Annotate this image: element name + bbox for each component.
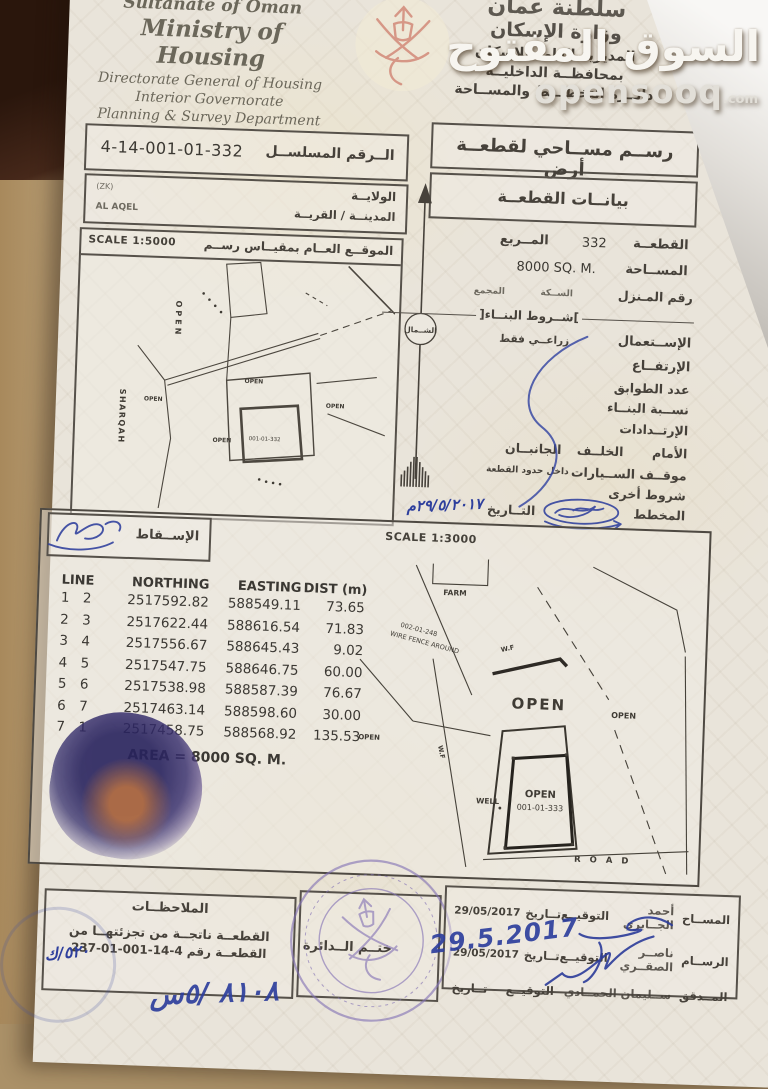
- plot-value: 332: [582, 236, 607, 252]
- footer-signatures-scribble: [501, 891, 694, 998]
- floors-label: عدد الطوابق: [614, 380, 690, 398]
- table-cell: 73.65: [300, 596, 365, 620]
- document: Sultanate of Oman Ministry of Housing Di…: [0, 0, 768, 1072]
- table-cell: 2: [83, 588, 114, 611]
- map-label-open3: OPEN: [326, 403, 345, 411]
- map-label-sharqah: SHARQAH: [116, 389, 127, 444]
- header-english: Sultanate of Oman Ministry of Housing Di…: [84, 0, 338, 130]
- doc-title-box: رســم مســاحي لقطعــة أرض: [430, 122, 699, 177]
- setbacks-label: الإرتــدادات: [619, 421, 688, 438]
- house-number-label: رقم المـنزل: [618, 288, 693, 306]
- location-map-title: الموقــع العــام بمقيــاس رســم: [204, 237, 394, 258]
- planner-label: المخطط: [633, 507, 685, 524]
- projection-label: الإســقاط: [135, 527, 199, 544]
- table-cell: 6: [57, 695, 80, 717]
- table-cell: 588568.92: [204, 722, 297, 747]
- map-label-open4: OPEN: [212, 437, 231, 445]
- serial-label: الــرقم المسلســل: [265, 144, 395, 164]
- map-label-open-vertical: OPEN: [173, 300, 183, 337]
- table-cell: 5: [58, 674, 81, 696]
- table-cell: 71.83: [300, 618, 365, 642]
- checker-date-label: تــاريخ: [451, 981, 487, 996]
- projection-box: الإســقاط: [46, 512, 211, 562]
- table-cell: 5: [80, 653, 111, 676]
- building-terms-title: ]شــروط البنــاء[: [476, 307, 582, 325]
- watermark-brand-name: opensooq: [534, 72, 723, 111]
- detail-map-open-left-label: OPEN: [358, 733, 380, 742]
- detail-map-wf1-label: W.F: [500, 643, 515, 654]
- block-label: المــربع: [500, 232, 549, 249]
- area-label: المســاحة: [625, 262, 688, 279]
- plot-details-panel: القطعــة 332 المــربع المســاحة 8000 SQ.…: [435, 230, 697, 534]
- detail-map-open-right-label: OPEN: [611, 711, 636, 721]
- planner-date-handwritten: ٢٩/٥/٢٠١٧م: [406, 495, 483, 516]
- table-cell: 2: [60, 609, 83, 631]
- signatures-box: المســاح أحمد الجــابري التوقيــع تــاري…: [442, 885, 741, 999]
- photo-of-survey-document: { "watermark": { "line1": "السوق المفتوح…: [0, 0, 768, 1024]
- lane-label: الســكة: [540, 288, 573, 299]
- table-cell: 60.00: [298, 660, 363, 684]
- projection-signature: [42, 508, 134, 559]
- map-plot-number: 001-01-332: [249, 436, 281, 443]
- location-map-drawing: OPEN SHARQAH OPEN OPEN OPEN OPEN 001-01-…: [72, 255, 397, 520]
- detail-map-open-plot-label: OPEN: [525, 789, 556, 801]
- wilaya-value: (ZK): [96, 182, 113, 192]
- area-value: 8000 SQ. M.: [516, 259, 596, 277]
- header-en-line2: Ministry of Housing: [86, 12, 338, 75]
- table-cell: 9.02: [299, 639, 364, 663]
- bottom-handwriting: ٨١٠٨ /٥س: [149, 974, 279, 1011]
- table-cell: 30.00: [297, 703, 362, 727]
- watermark-brand-suffix: .com: [723, 92, 758, 107]
- watermark-brand: opensooq.com: [534, 72, 758, 111]
- north-label: الشــمال: [404, 325, 437, 335]
- plot-data-title-box: بيانــات القطعــة: [428, 172, 697, 227]
- table-cell: 3: [59, 631, 82, 653]
- detail-map-wf2-label: W.F: [436, 745, 447, 760]
- detail-map-plot-number: 001-01-333: [517, 803, 564, 814]
- detail-map-farm-label: FARM: [443, 588, 467, 598]
- wilaya-label: الولايــة: [351, 189, 397, 205]
- detail-map-well-label: WELL: [476, 796, 499, 806]
- location-map-box: SCALE 1:5000 الموقــع العــام بمقيــاس ر…: [70, 227, 404, 526]
- serial-value: 4-14-001-01-332: [100, 137, 243, 161]
- oman-emblem-icon: [345, 0, 461, 100]
- complex-label: المجمع: [474, 286, 506, 297]
- front-label: الأمام: [652, 445, 688, 461]
- plot-label: القطعــة: [633, 236, 689, 253]
- table-cell: 4: [81, 631, 112, 654]
- map-label-open1: OPEN: [144, 395, 163, 403]
- map-label-open2: OPEN: [244, 378, 263, 386]
- town-label: المدينــة / القريــة: [294, 207, 396, 225]
- table-cell: 4: [58, 652, 81, 674]
- table-cell: 6: [80, 674, 111, 697]
- table-cell: 135.53: [296, 725, 361, 749]
- table-cell: 76.67: [297, 682, 362, 706]
- use-label: الإســتعمال: [618, 334, 692, 352]
- detail-map-drawing: FARM 002-01-248 WIRE FENCE AROUND W.F W.…: [348, 541, 704, 881]
- survey-section-box: الإســقاط SCALE 1:3000 LINE NORTHING EAS…: [28, 508, 712, 887]
- location-map-scale: SCALE 1:5000: [88, 233, 176, 248]
- detail-map-road-label: R O A D: [574, 855, 632, 867]
- ink-curve-mark: [493, 328, 610, 522]
- height-label: الإرتفــاع: [632, 358, 691, 375]
- ratio-label: نســبة البنــاء: [607, 400, 689, 418]
- town-value: AL AQEL: [95, 202, 138, 213]
- plot-data-title: بيانــات القطعــة: [431, 184, 696, 212]
- table-cell: 1: [61, 588, 84, 610]
- table-cell: 3: [82, 610, 113, 633]
- watermark-arabic: السوق المفتوح: [446, 22, 760, 71]
- detail-map-open-big-label: OPEN: [511, 694, 566, 714]
